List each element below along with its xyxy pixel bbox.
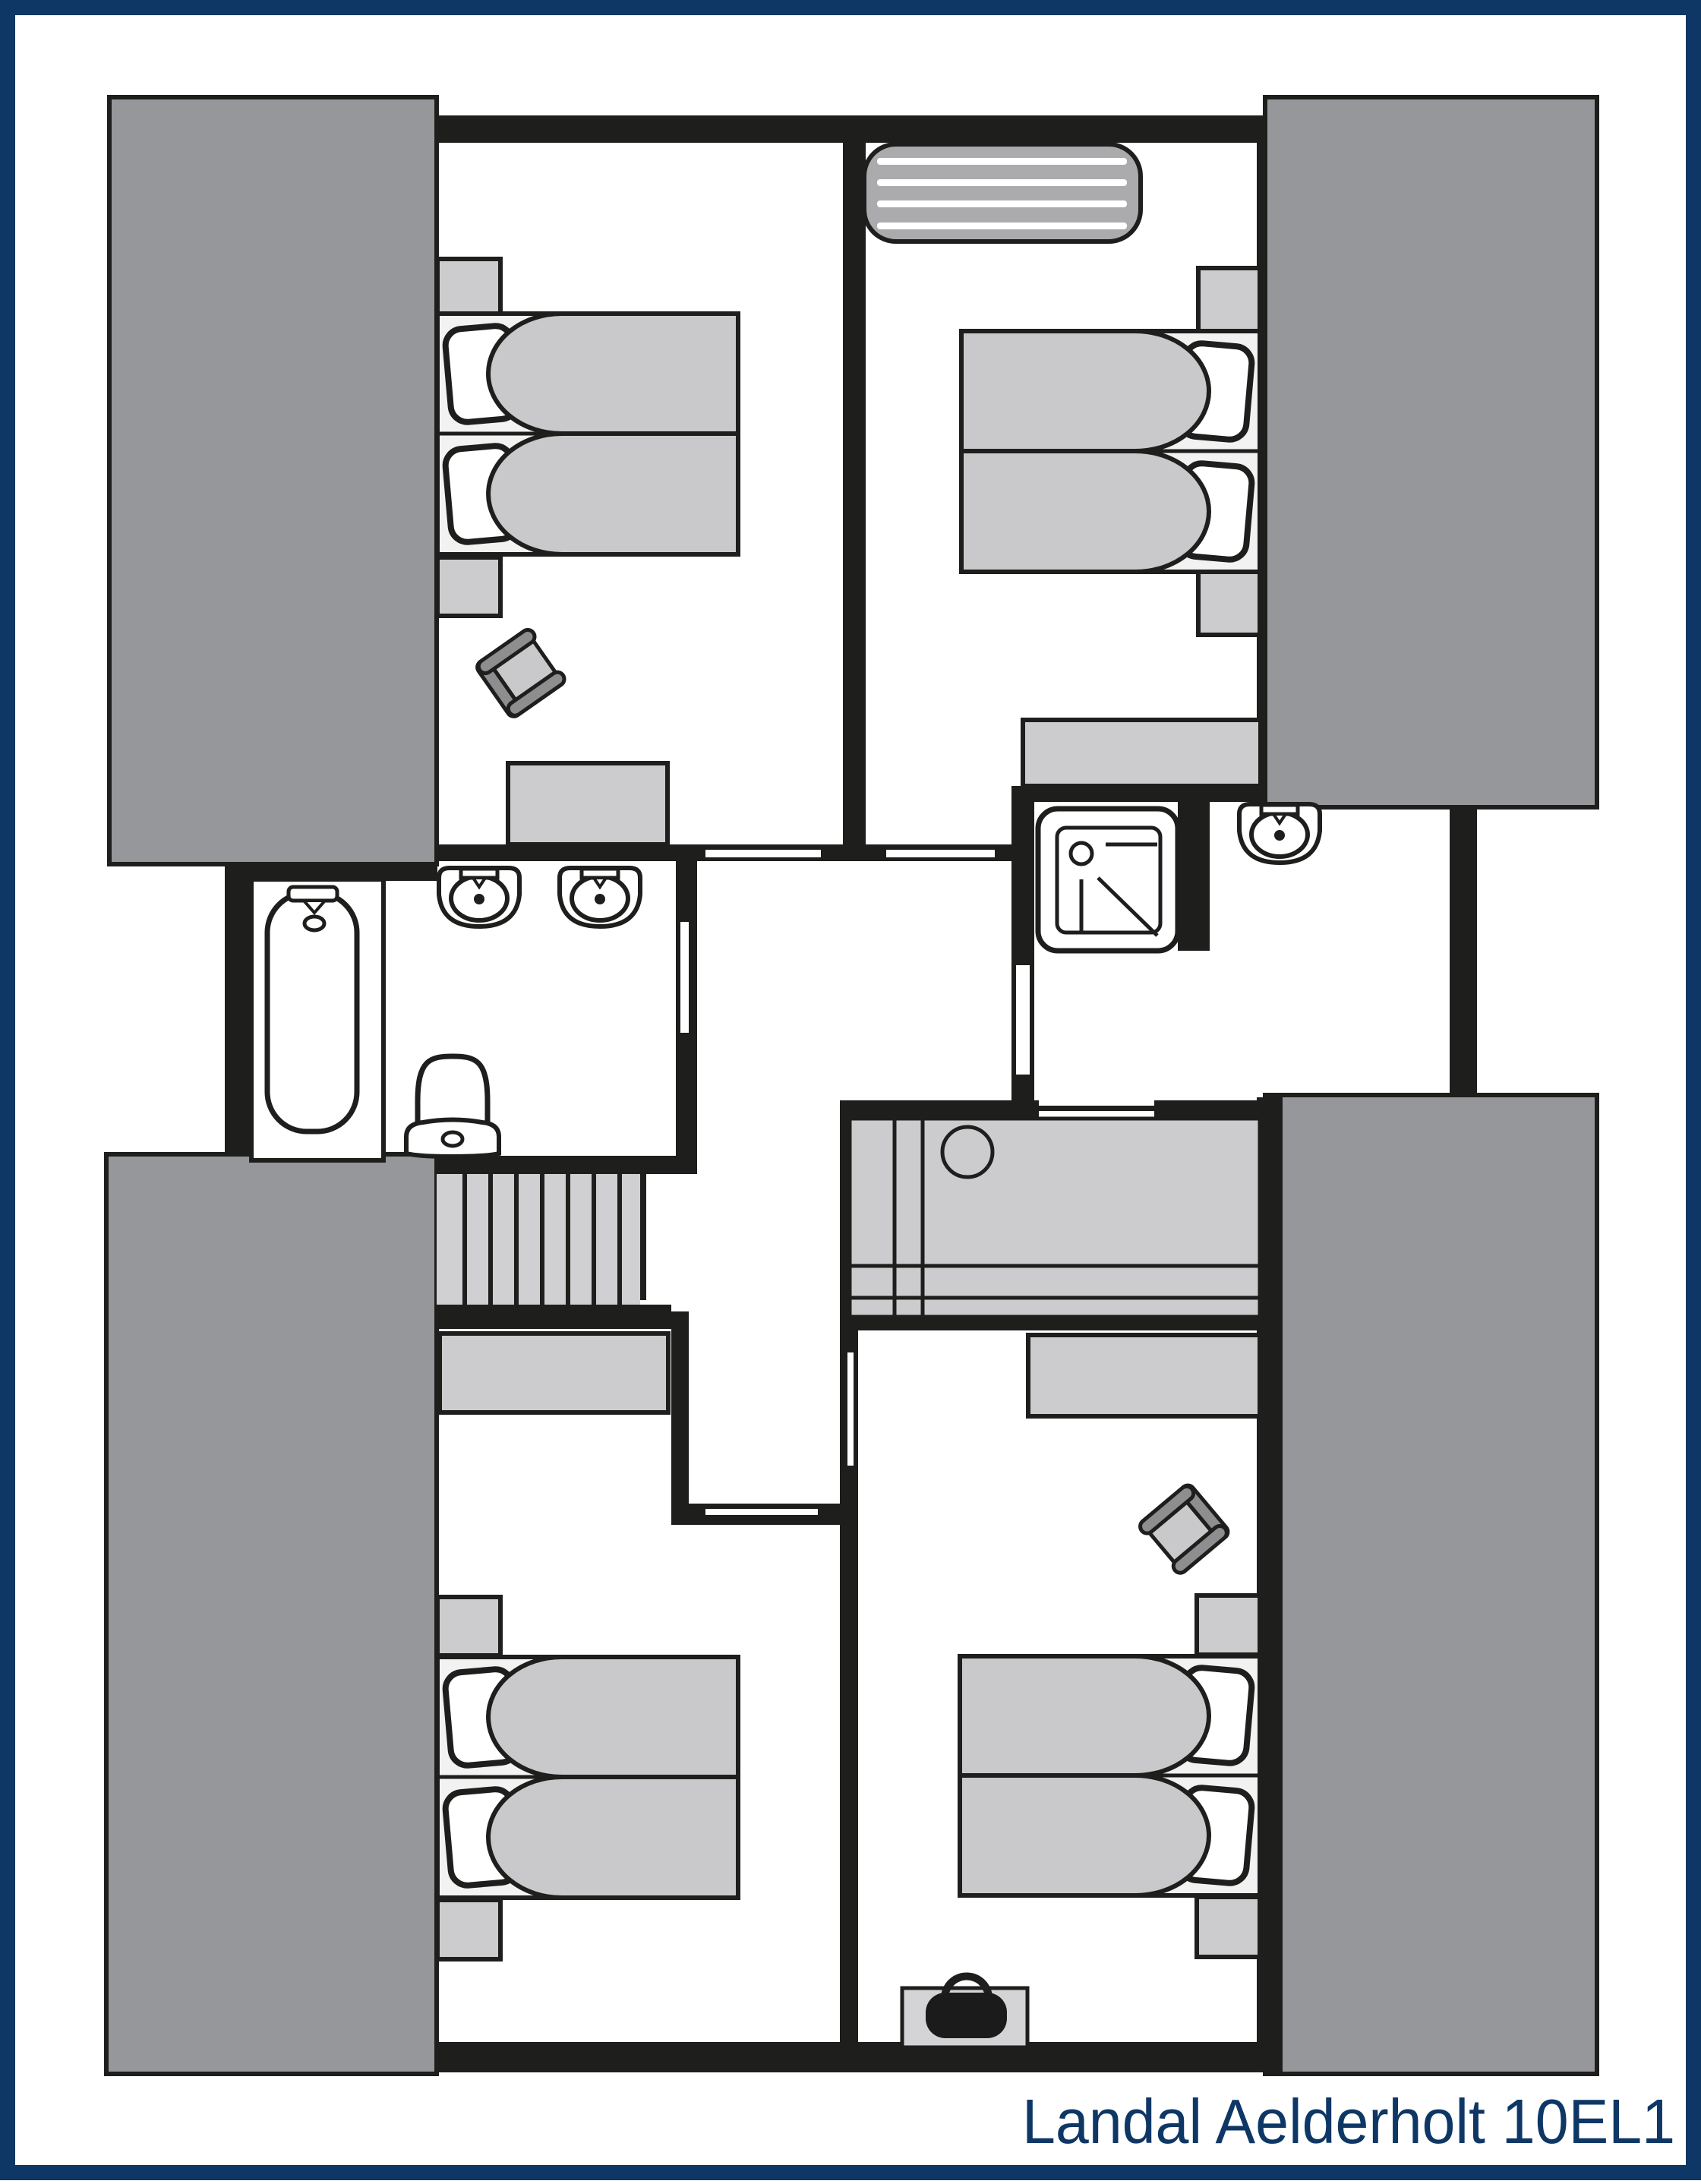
svg-text:Landal Aelderholt 10EL1: Landal Aelderholt 10EL1 — [1022, 2086, 1675, 2157]
